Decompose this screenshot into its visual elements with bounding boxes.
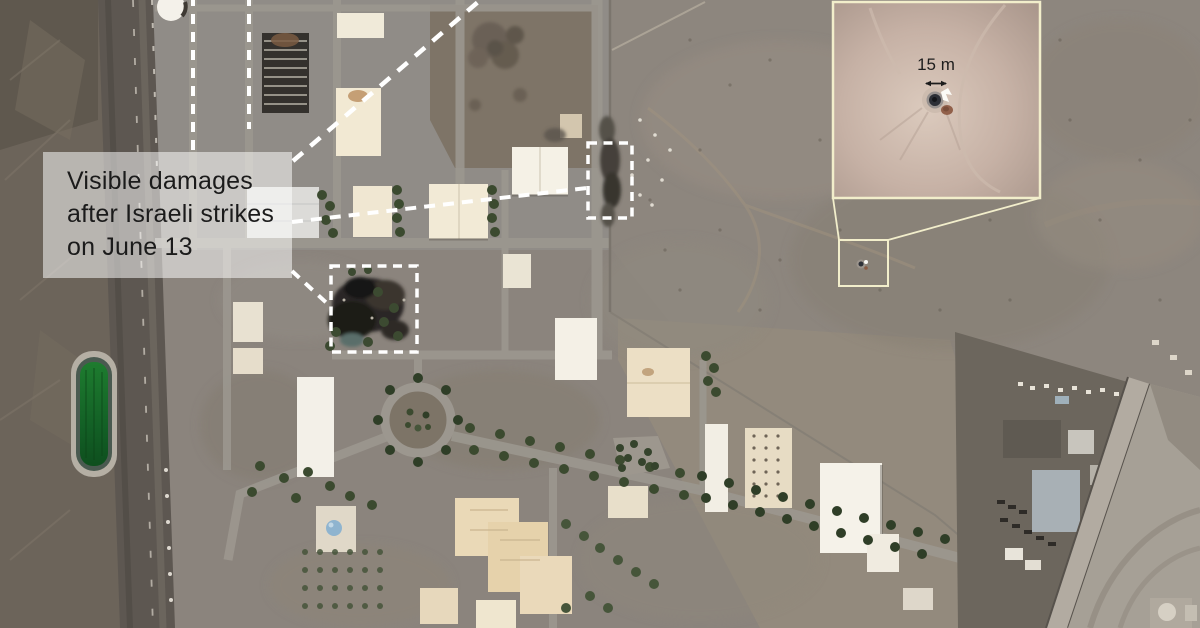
dome-building — [1150, 598, 1197, 628]
cream-hall-pair — [429, 184, 488, 241]
annotated-satellite-graphic: Visible damages after Israeli strikes on… — [0, 0, 1200, 628]
mosque — [316, 506, 356, 552]
scale-label: 15 m — [903, 55, 969, 75]
damage-label-line: on June 13 — [67, 231, 292, 264]
damage-label: Visible damages after Israeli strikes on… — [43, 152, 292, 278]
white-hall-pair-east — [512, 147, 568, 197]
cream-building-north — [336, 88, 381, 156]
damage-label-line: after Israeli strikes — [67, 198, 292, 231]
green-pond — [71, 351, 117, 477]
white-hall-southwest — [297, 377, 334, 477]
satellite-imagery-layer — [0, 0, 1200, 628]
damaged-grid-building — [262, 33, 309, 113]
inset-zoom-panel — [833, 2, 1040, 198]
highway-corridor — [0, 0, 175, 628]
cream-pair-southeast — [627, 348, 690, 417]
damage-label-line: Visible damages — [67, 165, 292, 198]
roundabout — [385, 387, 451, 453]
